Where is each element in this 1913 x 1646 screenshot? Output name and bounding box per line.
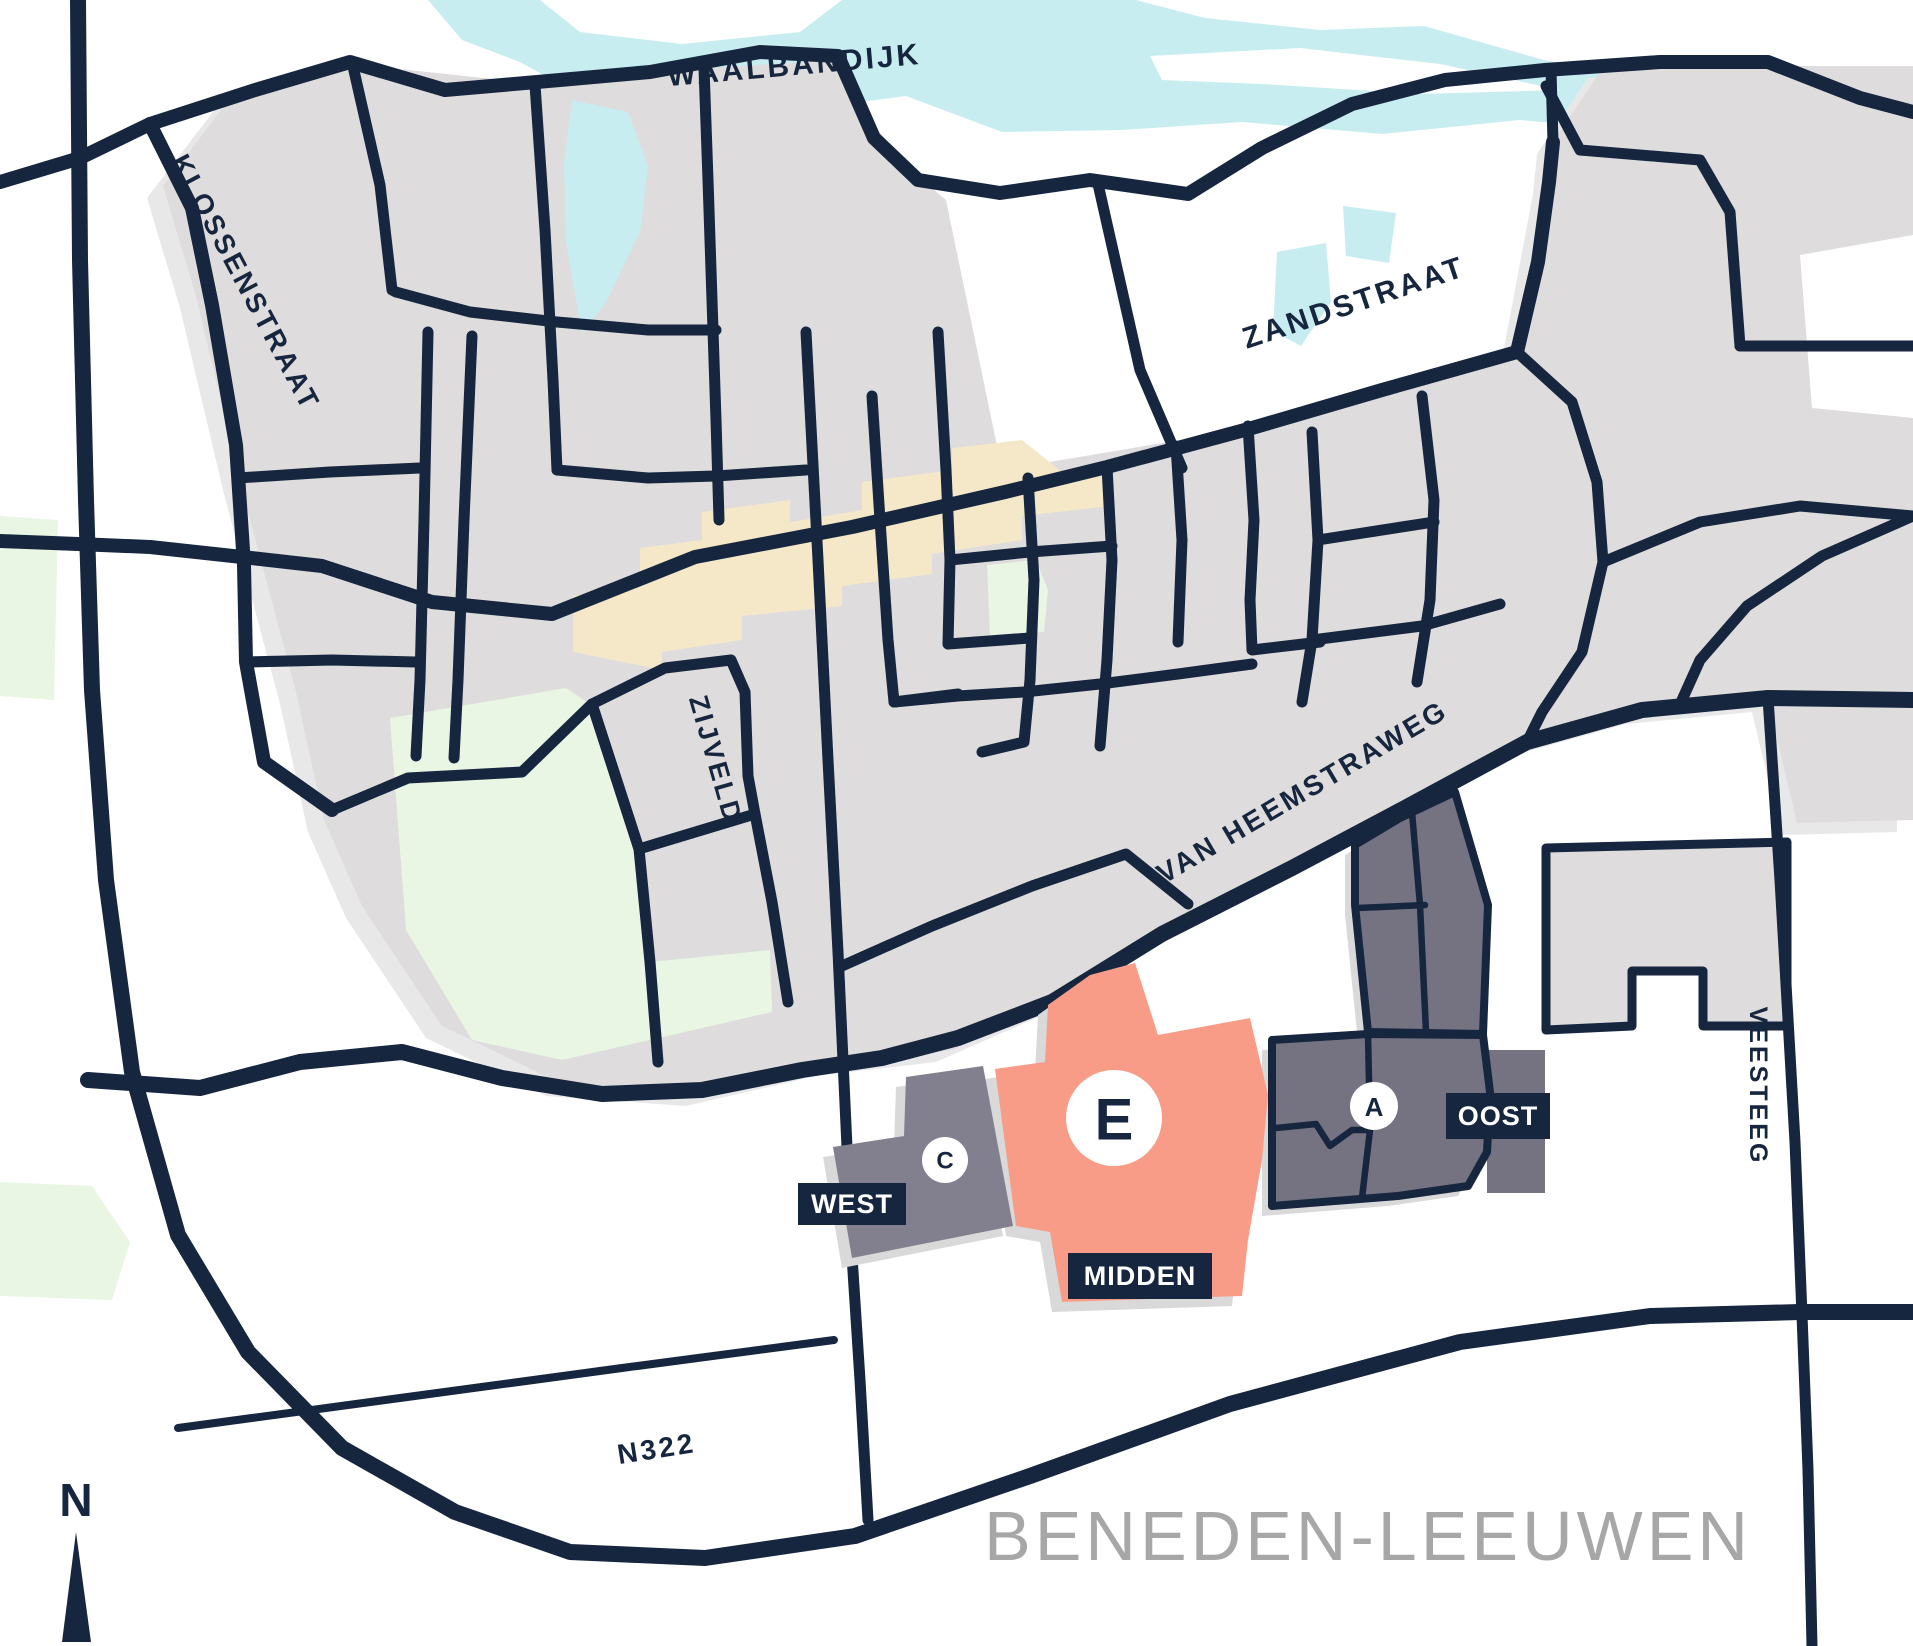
place-name: BENEDEN-LEEUWEN [984, 1497, 1752, 1575]
field-notch [1800, 235, 1913, 418]
map-canvas: C E A WEST MIDDEN OOST WAALBANDIJK KLOSS… [0, 0, 1913, 1646]
marker-e-letter: E [1095, 1088, 1134, 1153]
marker-c-letter: C [936, 1148, 953, 1175]
zone-midden-label: MIDDEN [1084, 1261, 1197, 1291]
zone-oost-inner-road [1357, 905, 1425, 908]
street-label-veesteeg: VEESTEEG [1744, 1007, 1772, 1166]
marker-a-letter: A [1365, 1092, 1384, 1122]
compass-north-label: N [59, 1474, 92, 1526]
pond [1343, 206, 1396, 263]
zone-west-label: WEST [811, 1189, 893, 1219]
zone-oost-label: OOST [1458, 1101, 1539, 1131]
road [246, 660, 416, 662]
road [1176, 446, 1182, 642]
road [948, 638, 1030, 644]
